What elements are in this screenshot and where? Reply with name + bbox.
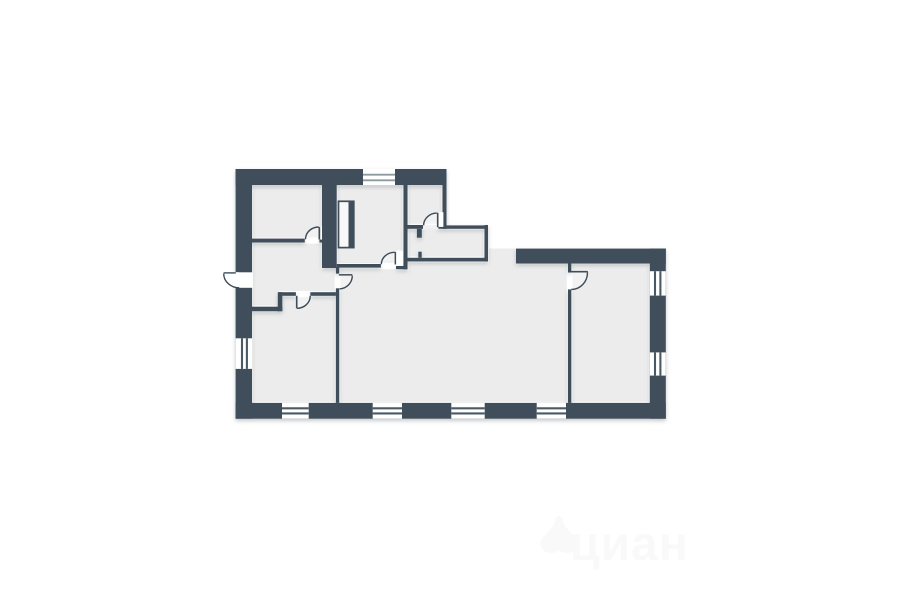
svg-text:циан: циан [570, 518, 689, 571]
